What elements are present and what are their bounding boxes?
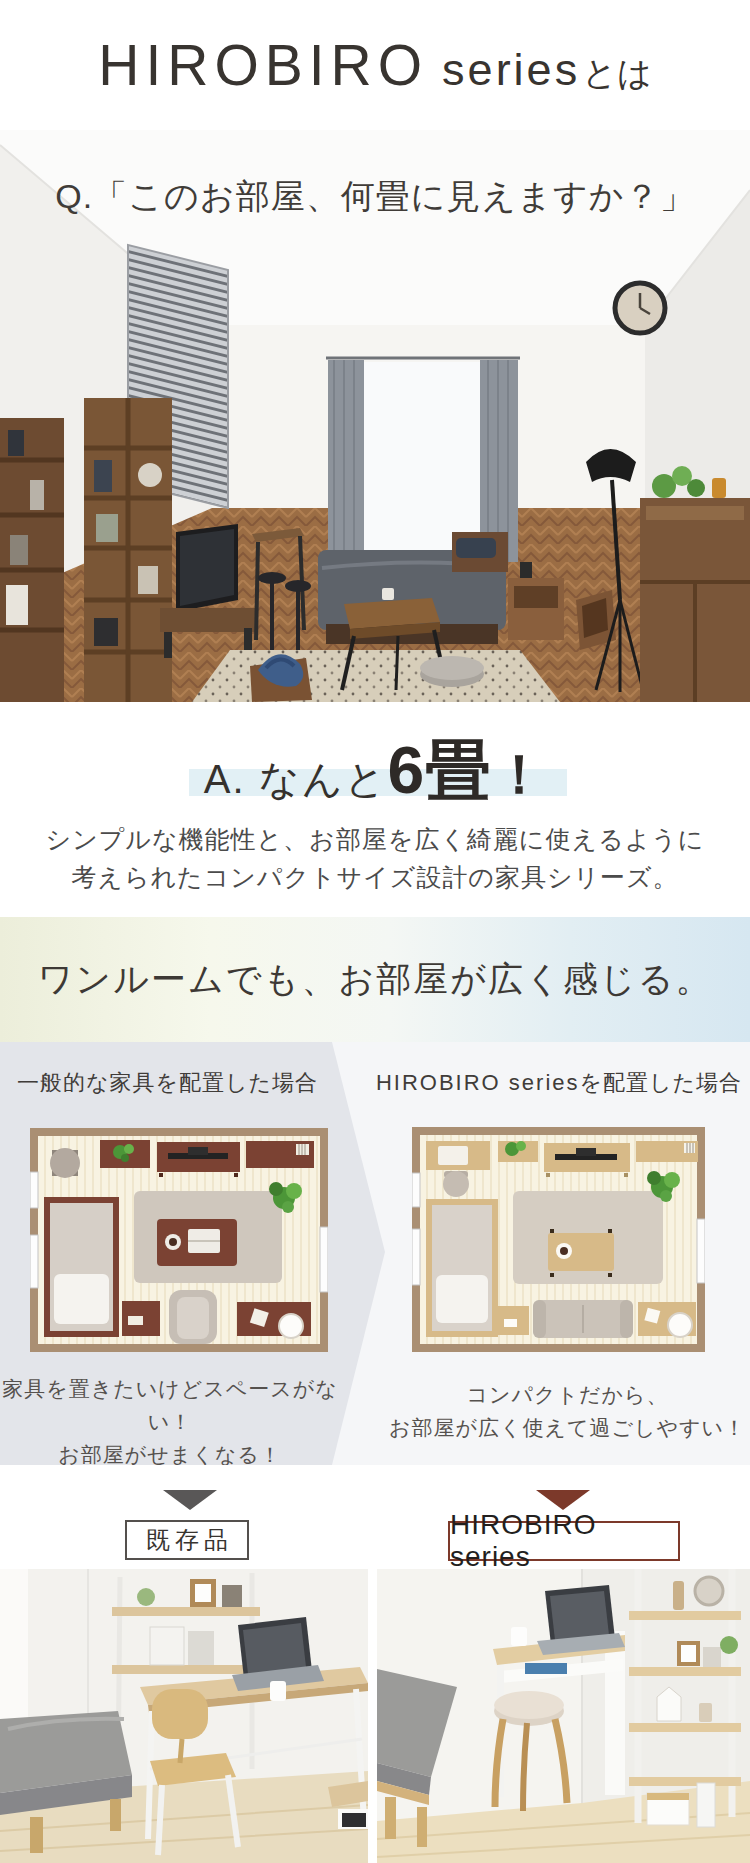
product-banner-page: HIROBIRO series とは <box>0 0 750 1863</box>
photo-divider <box>368 1569 377 1863</box>
question-text: Q.「このお部屋、何畳に見えますか？」 <box>0 174 750 220</box>
brand-series: series <box>442 44 580 96</box>
down-arrow-maroon-icon <box>536 1490 590 1510</box>
existing-product-tag: 既存品 <box>125 1520 249 1560</box>
tag-row: 既存品 HIROBIRO series <box>0 1465 750 1569</box>
round-table <box>50 1148 80 1178</box>
wall-clock <box>615 283 665 333</box>
floor-cushion <box>420 656 484 687</box>
left-caption-line1: 家具を置きたいけどスペースがない！ <box>0 1372 340 1438</box>
down-arrow-gray-icon <box>163 1490 217 1510</box>
photo-hirobiro-illustration <box>377 1569 750 1863</box>
window <box>326 358 520 562</box>
tv-board <box>157 1142 240 1177</box>
shelf-with-plant <box>100 1140 150 1168</box>
answer-prefix: A. なんと <box>204 757 388 801</box>
floorplan-comparison: 一般的な家具を配置した場合 HIROBIRO seriesを配置した場合 <box>0 1042 750 1465</box>
right-caption-line1: コンパクトだから、 <box>385 1378 750 1411</box>
floorplan-generic <box>30 1128 328 1352</box>
mug <box>511 1627 527 1646</box>
rug <box>192 650 560 702</box>
tv-board <box>544 1143 630 1177</box>
comparison-right-caption: コンパクトだから、 お部屋が広く使えて過ごしやすい！ <box>385 1378 750 1444</box>
curtain-right <box>480 360 518 562</box>
brand-suffix: とは <box>582 51 652 97</box>
header: HIROBIRO series とは <box>0 0 750 130</box>
left-shelf-tall <box>0 418 64 702</box>
bottom-right-desk <box>638 1302 696 1337</box>
comparison-right-heading: HIROBIRO seriesを配置した場合 <box>368 1068 750 1098</box>
right-caption-line2: お部屋が広く使えて過ごしやすい！ <box>385 1411 750 1444</box>
curtain-left <box>328 360 364 562</box>
right-cabinet <box>640 466 750 702</box>
comparison-left-heading: 一般的な家具を配置した場合 <box>0 1068 335 1098</box>
sofa <box>533 1300 633 1338</box>
comparison-right-heading-suffix: を配置した場合 <box>580 1070 743 1095</box>
description-line1: シンプルな機能性と、お部屋を広く綺麗に使えるように <box>0 820 750 858</box>
floor-chair <box>169 1290 217 1344</box>
page-title: HIROBIRO series とは <box>98 32 652 98</box>
photo-existing-illustration <box>0 1569 368 1863</box>
floorplan-hirobiro <box>412 1127 705 1352</box>
bed <box>426 1199 498 1337</box>
bottom-photos <box>0 1569 750 1863</box>
answer-section: A. なんと6畳！ シンプルな機能性と、お部屋を広く綺麗に使えるように 考えられ… <box>0 702 750 917</box>
hirobiro-series-tag: HIROBIRO series <box>448 1521 680 1561</box>
room-photo: Q.「このお部屋、何畳に見えますか？」 <box>0 130 750 702</box>
series-description: シンプルな機能性と、お部屋を広く綺麗に使えるように 考えられたコンパクトサイズ設… <box>0 820 750 896</box>
comparison-left-caption: 家具を置きたいけどスペースがない！ お部屋がせまくなる！ <box>0 1372 340 1471</box>
bottom-right-desk <box>237 1302 311 1338</box>
top-right-desk <box>246 1141 314 1168</box>
banner-text: ワンルームでも、お部屋が広く感じる。 <box>37 956 712 1003</box>
answer-big: 6畳 <box>388 733 493 807</box>
left-shelf-cube <box>84 398 172 702</box>
description-line2: 考えられたコンパクトサイズ設計の家具シリーズ。 <box>0 858 750 896</box>
kotatsu-table <box>157 1219 237 1266</box>
answer-exclamation: ！ <box>492 744 546 804</box>
photo-existing-product <box>0 1569 368 1863</box>
nightstand <box>498 1306 529 1335</box>
top-right-shelf <box>636 1141 698 1162</box>
nightstand <box>122 1301 160 1336</box>
photo-hirobiro-series <box>377 1569 750 1863</box>
bed <box>44 1197 119 1337</box>
shelf-with-plant <box>498 1141 538 1162</box>
brand-name: HIROBIRO <box>98 32 428 98</box>
low-table <box>548 1229 614 1277</box>
answer-line: A. なんと6畳！ <box>204 728 546 812</box>
mug <box>270 1681 286 1701</box>
comparison-right-heading-brand: HIROBIRO series <box>376 1070 580 1095</box>
wide-feeling-banner: ワンルームでも、お部屋が広く感じる。 <box>0 917 750 1042</box>
